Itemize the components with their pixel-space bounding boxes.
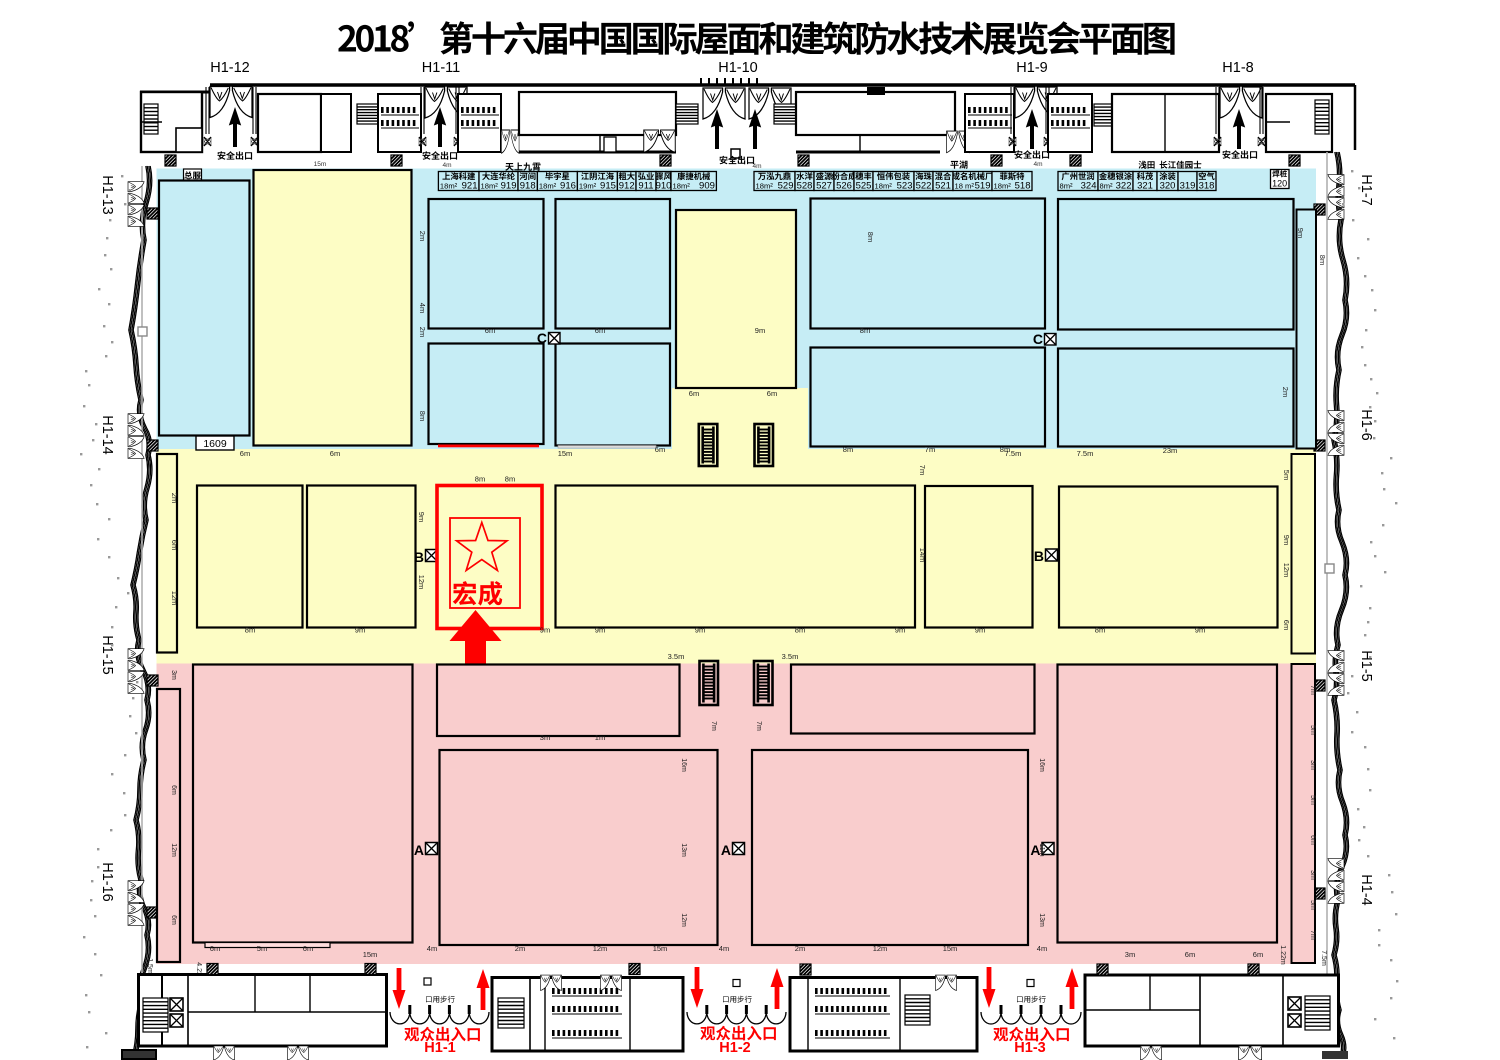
svg-text:318: 318 (1199, 181, 1215, 192)
svg-text:3m: 3m (1309, 760, 1316, 770)
svg-text:H1-5: H1-5 (1358, 650, 1374, 681)
svg-text:H1-7: H1-7 (1358, 174, 1374, 205)
svg-text:1.22m: 1.22m (1279, 945, 1286, 965)
svg-text:2m: 2m (795, 944, 805, 953)
svg-text:522: 522 (916, 181, 932, 192)
svg-text:5m: 5m (1282, 470, 1291, 480)
svg-text:H1-2: H1-2 (719, 1040, 750, 1056)
svg-text:A: A (721, 842, 731, 858)
svg-text:18m²: 18m² (994, 182, 1012, 191)
svg-text:15m: 15m (943, 944, 958, 953)
svg-text:8m: 8m (1095, 626, 1105, 635)
svg-text:12m: 12m (873, 944, 888, 953)
svg-text:H1-6: H1-6 (1358, 409, 1374, 440)
svg-text:H1-1: H1-1 (424, 1040, 455, 1056)
svg-text:519: 519 (975, 181, 991, 192)
svg-text:9m: 9m (1195, 626, 1205, 635)
svg-text:3.5m: 3.5m (668, 652, 685, 661)
svg-text:919: 919 (501, 181, 517, 192)
svg-text:1609: 1609 (203, 438, 227, 450)
svg-text:19m²: 19m² (579, 182, 597, 191)
svg-text:8m²: 8m² (1100, 182, 1114, 191)
svg-text:1.5m: 1.5m (146, 958, 153, 974)
svg-text:9m: 9m (355, 626, 365, 635)
svg-text:6m: 6m (210, 944, 220, 953)
svg-text:8m²: 8m² (1060, 182, 1074, 191)
svg-text:18m²: 18m² (539, 182, 557, 191)
svg-text:916: 916 (560, 181, 576, 192)
svg-text:525: 525 (856, 181, 872, 192)
svg-text:6m: 6m (330, 449, 340, 458)
svg-text:7m: 7m (918, 465, 927, 475)
svg-text:921: 921 (462, 181, 478, 192)
svg-text:9m: 9m (417, 512, 426, 522)
svg-text:23m: 23m (1163, 446, 1178, 455)
svg-text:H1-11: H1-11 (422, 60, 460, 76)
svg-text:7m: 7m (925, 445, 935, 454)
svg-text:C: C (1033, 331, 1043, 347)
svg-text:6m: 6m (303, 944, 313, 953)
svg-text:H1-8: H1-8 (1222, 60, 1253, 76)
svg-text:12m: 12m (170, 843, 177, 857)
svg-text:14m: 14m (918, 548, 927, 563)
svg-text:322: 322 (1116, 181, 1132, 192)
svg-text:912: 912 (619, 181, 635, 192)
svg-text:9m: 9m (1282, 535, 1291, 545)
svg-text:8m: 8m (245, 626, 255, 635)
svg-text:18m²: 18m² (875, 182, 893, 191)
svg-text:321: 321 (1137, 181, 1153, 192)
svg-text:H1-13: H1-13 (99, 175, 115, 215)
svg-text:6m: 6m (1185, 950, 1195, 959)
svg-text:H1-4: H1-4 (1358, 874, 1374, 905)
svg-text:8m: 8m (843, 445, 853, 454)
svg-text:5m: 5m (1309, 900, 1316, 910)
svg-text:910: 910 (656, 181, 672, 192)
svg-text:6m: 6m (1309, 835, 1316, 845)
svg-text:4m: 4m (752, 163, 761, 170)
svg-text:909: 909 (699, 181, 715, 192)
svg-text:12m: 12m (170, 591, 179, 606)
svg-text:9m: 9m (975, 626, 985, 635)
svg-text:6m: 6m (655, 445, 665, 454)
svg-text:521: 521 (935, 181, 951, 192)
svg-text:6m: 6m (767, 389, 777, 398)
svg-text:18m²: 18m² (481, 182, 499, 191)
svg-text:2m: 2m (515, 944, 525, 953)
svg-text:7m: 7m (1309, 930, 1316, 940)
svg-text:6m: 6m (170, 915, 177, 925)
svg-text:18m²: 18m² (756, 182, 774, 191)
svg-text:8m: 8m (860, 326, 870, 335)
svg-text:2m: 2m (418, 231, 427, 241)
svg-text:A: A (414, 842, 424, 858)
svg-text:6m: 6m (485, 326, 495, 335)
svg-text:15m: 15m (314, 161, 327, 168)
svg-text:H1-15: H1-15 (99, 635, 115, 675)
svg-text:6m: 6m (170, 540, 179, 550)
svg-text:13m: 13m (1038, 913, 1045, 927)
svg-text:8m: 8m (505, 475, 515, 484)
svg-text:7m: 7m (1309, 685, 1316, 695)
svg-text:6m: 6m (689, 389, 699, 398)
svg-text:4m: 4m (442, 162, 451, 169)
svg-text:C: C (537, 330, 547, 346)
svg-text:320: 320 (1160, 181, 1176, 192)
svg-text:1m: 1m (595, 733, 605, 742)
svg-text:3m: 3m (170, 670, 177, 680)
svg-text:7.5m: 7.5m (1320, 950, 1327, 966)
svg-text:518: 518 (1015, 181, 1031, 192)
svg-text:9m: 9m (1296, 228, 1305, 238)
svg-text:16m: 16m (680, 758, 687, 772)
svg-text:4m: 4m (427, 944, 437, 953)
svg-text:527: 527 (816, 181, 832, 192)
svg-text:7m: 7m (710, 721, 717, 731)
svg-text:15m: 15m (363, 950, 378, 959)
svg-text:3m: 3m (1309, 870, 1316, 880)
svg-text:529: 529 (778, 181, 794, 192)
svg-text:16m: 16m (1038, 758, 1045, 772)
svg-text:7m: 7m (755, 721, 762, 731)
svg-text:12m: 12m (417, 575, 426, 590)
svg-text:4m: 4m (1033, 161, 1042, 168)
svg-text:15m: 15m (653, 944, 668, 953)
svg-text:324: 324 (1081, 181, 1097, 192)
svg-text:528: 528 (797, 181, 813, 192)
svg-text:319: 319 (1180, 181, 1196, 192)
svg-text:18 m²: 18 m² (955, 182, 975, 191)
svg-text:6m: 6m (240, 449, 250, 458)
svg-text:4m: 4m (418, 303, 427, 313)
svg-text:B: B (1034, 548, 1044, 564)
svg-text:12m: 12m (680, 913, 687, 927)
svg-text:918: 918 (520, 181, 536, 192)
svg-text:H1-10: H1-10 (718, 60, 758, 76)
svg-text:2m: 2m (418, 327, 427, 337)
svg-text:H1-3: H1-3 (1014, 1040, 1045, 1056)
svg-text:18m²: 18m² (673, 182, 691, 191)
svg-text:2m: 2m (170, 493, 179, 503)
svg-text:18m²: 18m² (440, 182, 458, 191)
svg-text:5m: 5m (1309, 795, 1316, 805)
svg-text:911: 911 (638, 181, 653, 192)
svg-text:8m: 8m (795, 626, 805, 635)
svg-text:12m: 12m (1282, 563, 1291, 578)
svg-text:5m: 5m (1309, 725, 1316, 735)
svg-text:11m: 11m (1038, 843, 1045, 856)
svg-text:4m: 4m (1037, 944, 1047, 953)
svg-text:2m: 2m (1281, 387, 1290, 397)
svg-text:3.5m: 3.5m (782, 652, 799, 661)
svg-text:7.5m: 7.5m (1077, 449, 1094, 458)
svg-text:H1-9: H1-9 (1016, 60, 1047, 76)
svg-text:9m: 9m (895, 626, 905, 635)
svg-text:8m: 8m (866, 232, 875, 242)
svg-text:8m: 8m (1000, 445, 1010, 454)
svg-text:12m: 12m (593, 944, 608, 953)
svg-text:9m: 9m (595, 626, 605, 635)
svg-text:B: B (414, 549, 424, 565)
svg-text:3m: 3m (540, 733, 550, 742)
svg-text:8m: 8m (475, 475, 485, 484)
svg-text:13m: 13m (680, 843, 687, 857)
svg-text:9m: 9m (755, 326, 765, 335)
svg-text:120: 120 (1272, 179, 1287, 189)
svg-text:6m: 6m (1253, 950, 1263, 959)
svg-text:4m: 4m (719, 944, 729, 953)
svg-text:H1-12: H1-12 (210, 60, 250, 76)
svg-text:3m: 3m (1125, 950, 1135, 959)
svg-text:8m: 8m (1318, 255, 1327, 265)
svg-text:915: 915 (600, 181, 616, 192)
svg-text:526: 526 (836, 181, 852, 192)
svg-text:9m: 9m (540, 626, 550, 635)
svg-text:6m: 6m (1282, 620, 1291, 630)
svg-text:6m: 6m (595, 326, 605, 335)
svg-text:H1-14: H1-14 (99, 415, 115, 455)
svg-text:9m: 9m (695, 626, 705, 635)
svg-text:8m: 8m (418, 411, 427, 421)
svg-text:523: 523 (897, 181, 913, 192)
svg-text:5m: 5m (257, 944, 267, 953)
svg-text:15m: 15m (558, 449, 573, 458)
svg-text:H1-16: H1-16 (99, 862, 115, 902)
svg-text:6m: 6m (170, 785, 177, 795)
